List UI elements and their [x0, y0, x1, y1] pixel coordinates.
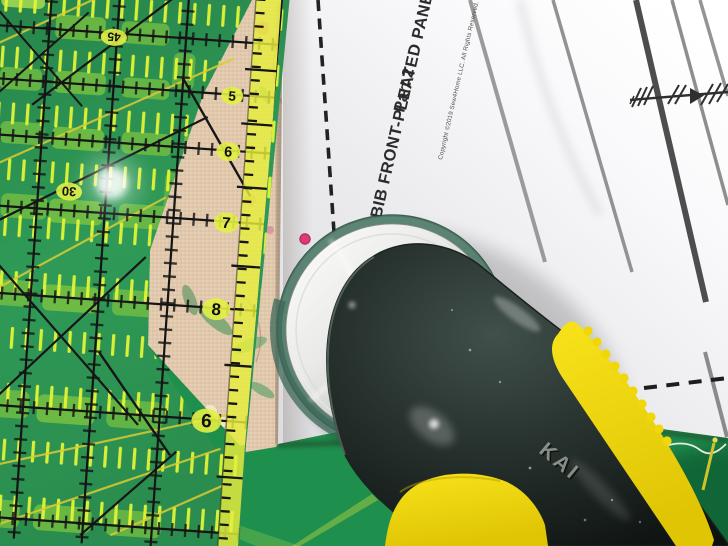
svg-text:30: 30 [61, 184, 76, 200]
pink-pin-dot [300, 234, 310, 244]
scene-canvas: BIB FRONT-PLEATED PANEL Part 2 Copyright… [0, 0, 728, 546]
svg-text:8: 8 [211, 300, 222, 320]
svg-text:6: 6 [200, 411, 212, 433]
svg-text:6: 6 [224, 144, 233, 161]
svg-text:7: 7 [221, 215, 231, 233]
svg-text:45: 45 [107, 29, 122, 44]
photo-rotary-cutting-scene: BIB FRONT-PLEATED PANEL Part 2 Copyright… [0, 0, 728, 546]
